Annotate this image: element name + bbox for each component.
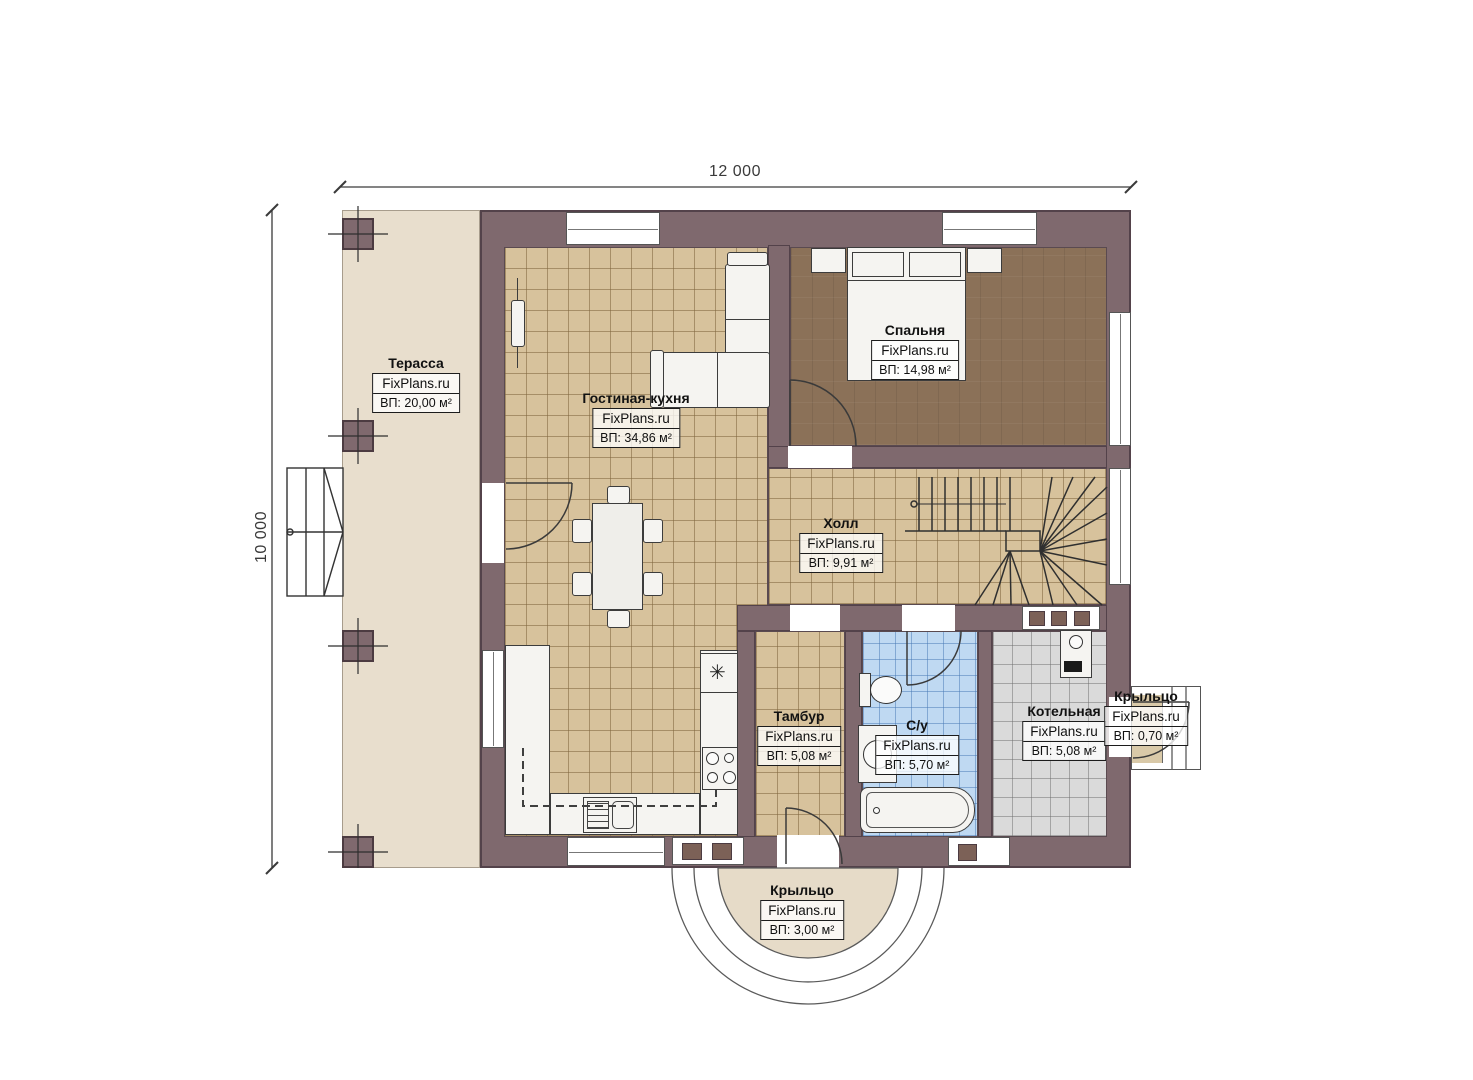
glass-block: [1051, 611, 1067, 626]
room-label-terrace: Терасса FixPlans.ru ВП: 20,00 м²: [372, 355, 460, 413]
room-area: ВП: 0,70 м²: [1105, 727, 1187, 745]
room-name: Тамбур: [757, 708, 841, 724]
tv-unit: [511, 300, 525, 347]
window-kitchen-bottom: [567, 837, 665, 866]
room-name: Котельная: [1022, 703, 1106, 719]
sofa-cushion-line: [726, 319, 769, 320]
boiler-panel: [1064, 661, 1082, 672]
nightstand: [811, 248, 846, 273]
room-area: ВП: 9,91 м²: [800, 554, 882, 572]
watermark-fixplans: FixPlans.ru: [761, 901, 843, 921]
wall-bathroom-boiler: [978, 631, 992, 837]
watermark-fixplans: FixPlans.ru: [373, 374, 459, 394]
terrace-post: [342, 630, 374, 662]
label-box: FixPlans.ru ВП: 5,08 м²: [1022, 721, 1106, 761]
wall-block: [682, 843, 702, 860]
window-hall-right: [1109, 468, 1131, 585]
room-area: ВП: 5,08 м²: [1023, 742, 1105, 760]
room-area: ВП: 20,00 м²: [373, 394, 459, 412]
room-label-bathroom: С/у FixPlans.ru ВП: 5,70 м²: [875, 717, 959, 775]
room-name: Крыльцо: [760, 882, 844, 898]
kitchen-counter-left: [505, 645, 550, 835]
kitchen-sink: [583, 797, 637, 833]
external-stairs: [287, 468, 343, 596]
watermark-fixplans: FixPlans.ru: [800, 534, 882, 554]
label-box: FixPlans.ru ВП: 5,70 м²: [875, 735, 959, 775]
room-name: Крыльцо: [1104, 688, 1188, 704]
window-living-left: [482, 650, 504, 748]
watermark-fixplans: FixPlans.ru: [1105, 707, 1187, 727]
label-box: FixPlans.ru ВП: 5,08 м²: [757, 726, 841, 766]
label-box: FixPlans.ru ВП: 14,98 м²: [871, 340, 959, 380]
wall-block: [958, 844, 977, 861]
nightstand: [967, 248, 1002, 273]
label-box: FixPlans.ru ВП: 9,91 м²: [799, 533, 883, 573]
chair: [643, 519, 663, 543]
sink-basin: [612, 801, 634, 829]
room-name: Спальня: [871, 322, 959, 338]
wall-block: [712, 843, 732, 860]
label-box: FixPlans.ru ВП: 20,00 м²: [372, 373, 460, 413]
room-label-bedroom: Спальня FixPlans.ru ВП: 14,98 м²: [871, 322, 959, 380]
room-name: Гостиная-кухня: [582, 390, 689, 406]
window-bedroom-top: [942, 212, 1037, 245]
terrace-post: [342, 836, 374, 868]
room-label-tambour: Тамбур FixPlans.ru ВП: 5,08 м²: [757, 708, 841, 766]
terrace-post: [342, 218, 374, 250]
room-label-porch-right: Крыльцо FixPlans.ru ВП: 0,70 м²: [1104, 688, 1188, 746]
chair: [572, 572, 592, 596]
bathroom-door-opening: [902, 605, 955, 631]
room-area: ВП: 14,98 м²: [872, 361, 958, 379]
room-name: С/у: [875, 717, 959, 733]
toilet-bowl: [870, 676, 902, 704]
boiler-glass-block-band: [1022, 606, 1100, 630]
burner: [707, 772, 718, 783]
bathtub-drain: [873, 807, 880, 814]
room-label-porch-bottom: Крыльцо FixPlans.ru ВП: 3,00 м²: [760, 882, 844, 940]
floor-plan-page: ✳: [0, 0, 1473, 1080]
blanket-line: [848, 280, 965, 281]
terrace-floor: [342, 210, 480, 868]
sink-drainer: [587, 801, 609, 829]
watermark-fixplans: FixPlans.ru: [876, 736, 958, 756]
room-area: ВП: 5,08 м²: [758, 747, 840, 765]
watermark-fixplans: FixPlans.ru: [758, 727, 840, 747]
tv-stand-line: [517, 347, 518, 368]
chair: [572, 519, 592, 543]
burner: [724, 753, 734, 763]
pillow: [852, 252, 904, 277]
room-name: Терасса: [372, 355, 460, 371]
label-box: FixPlans.ru ВП: 34,86 м²: [592, 408, 680, 448]
terrace-post: [342, 420, 374, 452]
burner: [706, 752, 719, 765]
label-box: FixPlans.ru ВП: 3,00 м²: [760, 900, 844, 940]
boiler-unit: [1060, 630, 1092, 678]
bathtub: [860, 787, 975, 833]
watermark-fixplans: FixPlans.ru: [1023, 722, 1105, 742]
entry-door-opening: [777, 835, 839, 868]
bottom-wall-blocks-left: [672, 837, 744, 865]
label-box: FixPlans.ru ВП: 0,70 м²: [1104, 706, 1188, 746]
room-area: ВП: 3,00 м²: [761, 921, 843, 939]
wall-living-bedroom: [768, 245, 790, 448]
chair: [607, 610, 630, 628]
tv-stand-line: [517, 278, 518, 300]
burner: [723, 771, 736, 784]
bedroom-door-opening: [788, 446, 852, 468]
chair: [607, 486, 630, 504]
sofa-armrest: [727, 252, 768, 266]
wall-kitchen-tambour: [737, 631, 755, 837]
room-area: ВП: 5,70 м²: [876, 756, 958, 774]
terrace-door-opening: [482, 483, 504, 563]
dimension-height: 10 000: [253, 505, 271, 569]
glass-block: [1074, 611, 1090, 626]
watermark-fixplans: FixPlans.ru: [872, 341, 958, 361]
bathtub-inner: [866, 792, 969, 828]
room-area: ВП: 34,86 м²: [593, 429, 679, 447]
pillow: [909, 252, 961, 277]
room-label-living: Гостиная-кухня FixPlans.ru ВП: 34,86 м²: [582, 390, 689, 448]
dimension-width: 12 000: [700, 163, 770, 181]
vent-symbol: ✳: [709, 663, 726, 683]
boiler-gauge: [1069, 635, 1083, 649]
watermark-fixplans: FixPlans.ru: [593, 409, 679, 429]
dining-table: [592, 503, 643, 610]
stove: [702, 747, 738, 790]
sofa-cushion-line: [717, 353, 718, 407]
window-living-top: [566, 212, 660, 245]
room-name: Холл: [799, 515, 883, 531]
room-label-hall: Холл FixPlans.ru ВП: 9,91 м²: [799, 515, 883, 573]
tambour-hall-opening: [790, 605, 840, 631]
room-label-boiler: Котельная FixPlans.ru ВП: 5,08 м²: [1022, 703, 1106, 761]
bottom-wall-blocks-right: [948, 837, 1010, 866]
glass-block: [1029, 611, 1045, 626]
chair: [643, 572, 663, 596]
window-bedroom-right: [1109, 312, 1131, 446]
